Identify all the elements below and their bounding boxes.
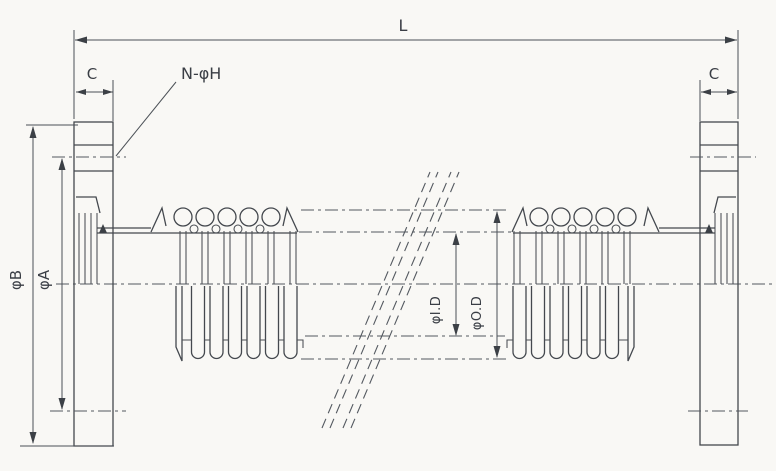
bolt-hole-label: N-φH xyxy=(181,64,221,83)
dim-label-inner-diameter: φI.D xyxy=(429,296,444,325)
dim-label-outer-diameter: φO.D xyxy=(470,296,485,330)
dim-label-overall-length: L xyxy=(399,16,408,35)
dim-label-bolt-circle-diameter: φA xyxy=(35,269,53,290)
dim-label-flange-outer-diameter: φB xyxy=(7,270,25,290)
expansion-joint-technical-drawing: L C C N-φH φB φA xyxy=(0,0,776,471)
paper-background xyxy=(0,0,776,471)
drawing-canvas: L C C N-φH φB φA xyxy=(0,0,776,471)
dim-label-flange-thickness-left: C xyxy=(87,65,97,83)
dim-label-flange-thickness-right: C xyxy=(709,65,719,83)
